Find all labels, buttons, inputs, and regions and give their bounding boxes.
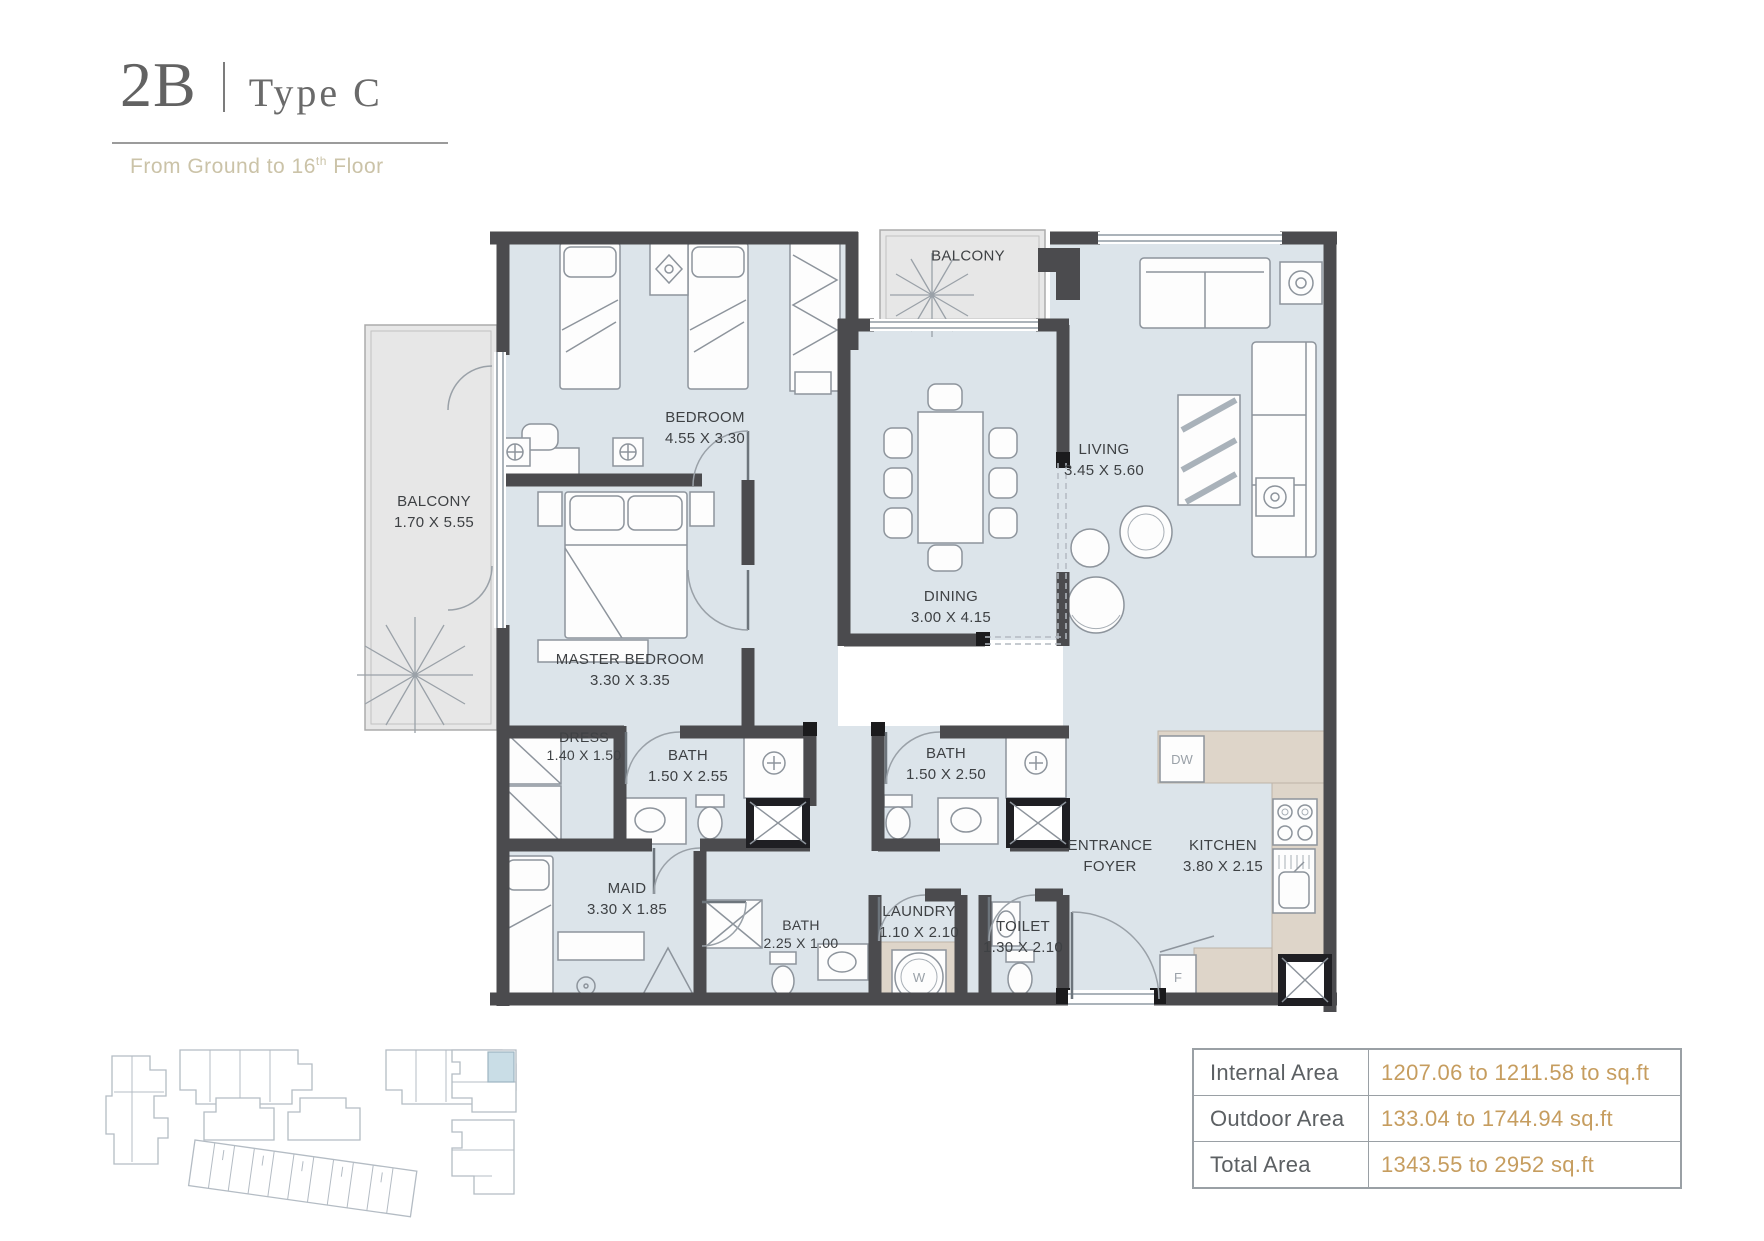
subtitle-prefix: From Ground to 16 (130, 155, 316, 178)
room-label-balcony-left: BALCONY 1.70 X 5.55 (394, 491, 474, 533)
area-row-label: Total Area (1194, 1141, 1368, 1187)
room-label-bedroom: BEDROOM 4.55 X 3.30 (665, 407, 745, 449)
room-label-kitchen: KITCHEN 3.80 X 2.15 (1183, 835, 1263, 877)
room-label-dining: DINING 3.00 X 4.15 (911, 586, 991, 628)
room-label-toilet: TOILET 1.30 X 2.10 (983, 916, 1063, 958)
room-label-master-bedroom: MASTER BEDROOM 3.30 X 3.35 (556, 649, 704, 691)
floor-range-subtitle: From Ground to 16th Floor (130, 154, 384, 179)
washer-label: W (913, 970, 926, 985)
fridge-label: F (1174, 970, 1182, 985)
room-label-maid: MAID 3.30 X 1.85 (587, 878, 667, 920)
unit-type: Type C (249, 70, 383, 115)
room-label-laundry: LAUNDRY 1.10 X 2.10 (879, 901, 959, 943)
room-label-dress: DRESS 1.40 X 1.50 (547, 728, 622, 764)
area-row-label: Outdoor Area (1194, 1095, 1368, 1141)
title-rule (112, 142, 448, 144)
title-block: 2BType C (120, 48, 383, 122)
room-label-bath-3: BATH 2.25 X 1.00 (764, 916, 839, 952)
title-divider (223, 62, 225, 112)
area-table: Internal Area 1207.06 to 1211.58 to sq.f… (1192, 1048, 1682, 1189)
floorplan-page: DW F W 2BType C (0, 0, 1764, 1241)
room-label-balcony-top: BALCONY (931, 246, 1005, 267)
area-row-label: Internal Area (1194, 1050, 1368, 1095)
subtitle-suffix: Floor (327, 155, 384, 178)
room-label-living: LIVING 3.45 X 5.60 (1064, 439, 1144, 481)
room-label-entrance-foyer: ENTRANCE FOYER (1050, 835, 1170, 877)
site-key-plan (106, 1050, 516, 1217)
dishwasher-label: DW (1171, 752, 1193, 767)
room-label-bath-2: BATH 1.50 X 2.50 (906, 743, 986, 785)
room-label-bath-1: BATH 1.50 X 2.55 (648, 745, 728, 787)
unit-code: 2B (120, 49, 197, 120)
area-row-value: 1343.55 to 2952 sq.ft (1368, 1141, 1680, 1187)
area-row-value: 133.04 to 1744.94 sq.ft (1368, 1095, 1680, 1141)
subtitle-superscript: th (316, 154, 327, 168)
area-row-value: 1207.06 to 1211.58 to sq.ft (1368, 1050, 1680, 1095)
